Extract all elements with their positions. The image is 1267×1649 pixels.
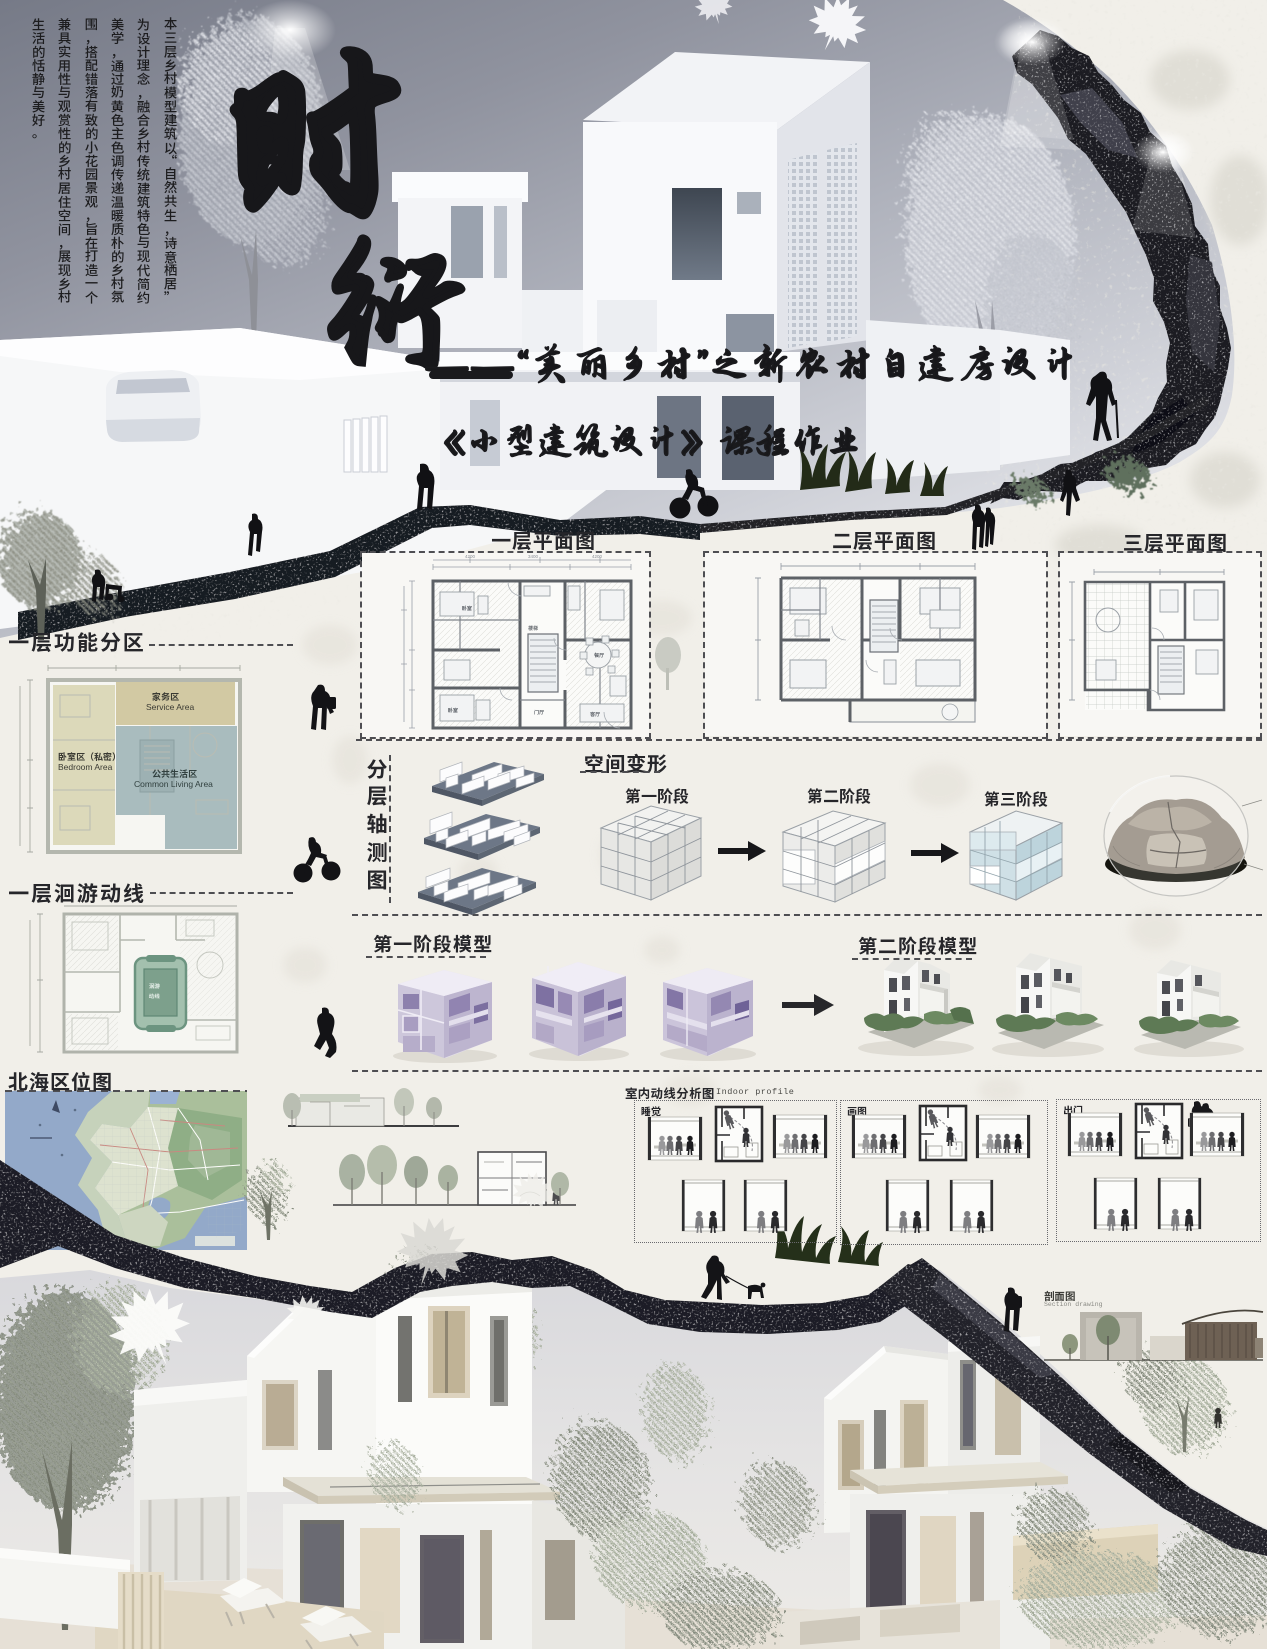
svg-text:洄游: 洄游 — [149, 982, 161, 990]
svg-text:动线: 动线 — [149, 992, 161, 1000]
